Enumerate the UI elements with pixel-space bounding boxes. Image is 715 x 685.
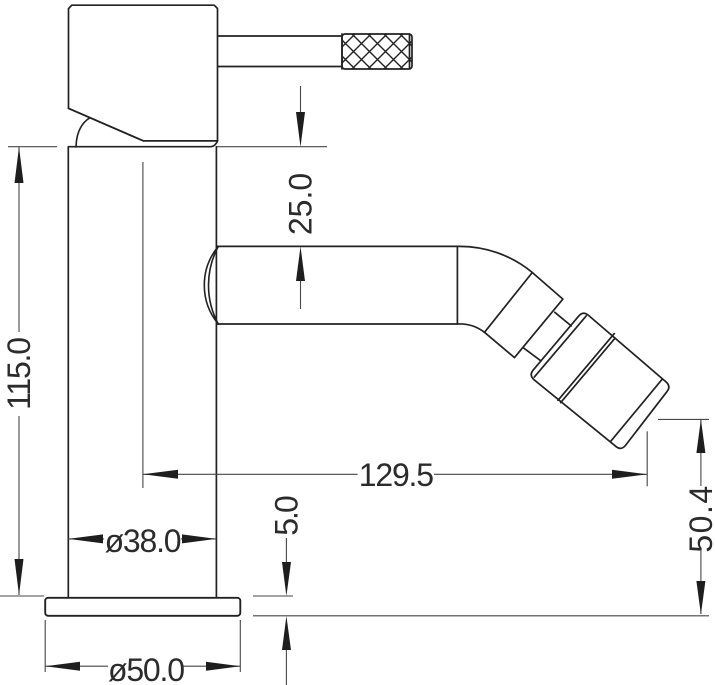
svg-text:115.0: 115.0 xyxy=(1,338,37,410)
svg-text:5.0: 5.0 xyxy=(268,496,304,536)
svg-text:50.4: 50.4 xyxy=(683,484,715,552)
svg-text:ø50.0: ø50.0 xyxy=(108,652,184,685)
svg-text:25.0: 25.0 xyxy=(283,173,319,235)
svg-text:ø38.0: ø38.0 xyxy=(105,523,181,559)
svg-text:129.5: 129.5 xyxy=(359,457,433,493)
